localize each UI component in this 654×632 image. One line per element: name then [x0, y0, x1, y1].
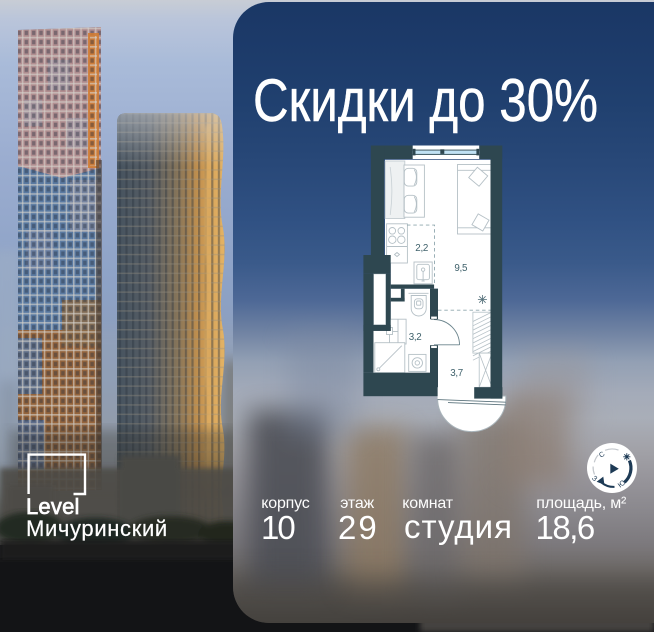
svg-text:3,7: 3,7	[450, 368, 463, 379]
svg-text:2,2: 2,2	[415, 243, 428, 254]
svg-text:3,2: 3,2	[409, 332, 422, 343]
svg-text:9,5: 9,5	[454, 263, 468, 274]
